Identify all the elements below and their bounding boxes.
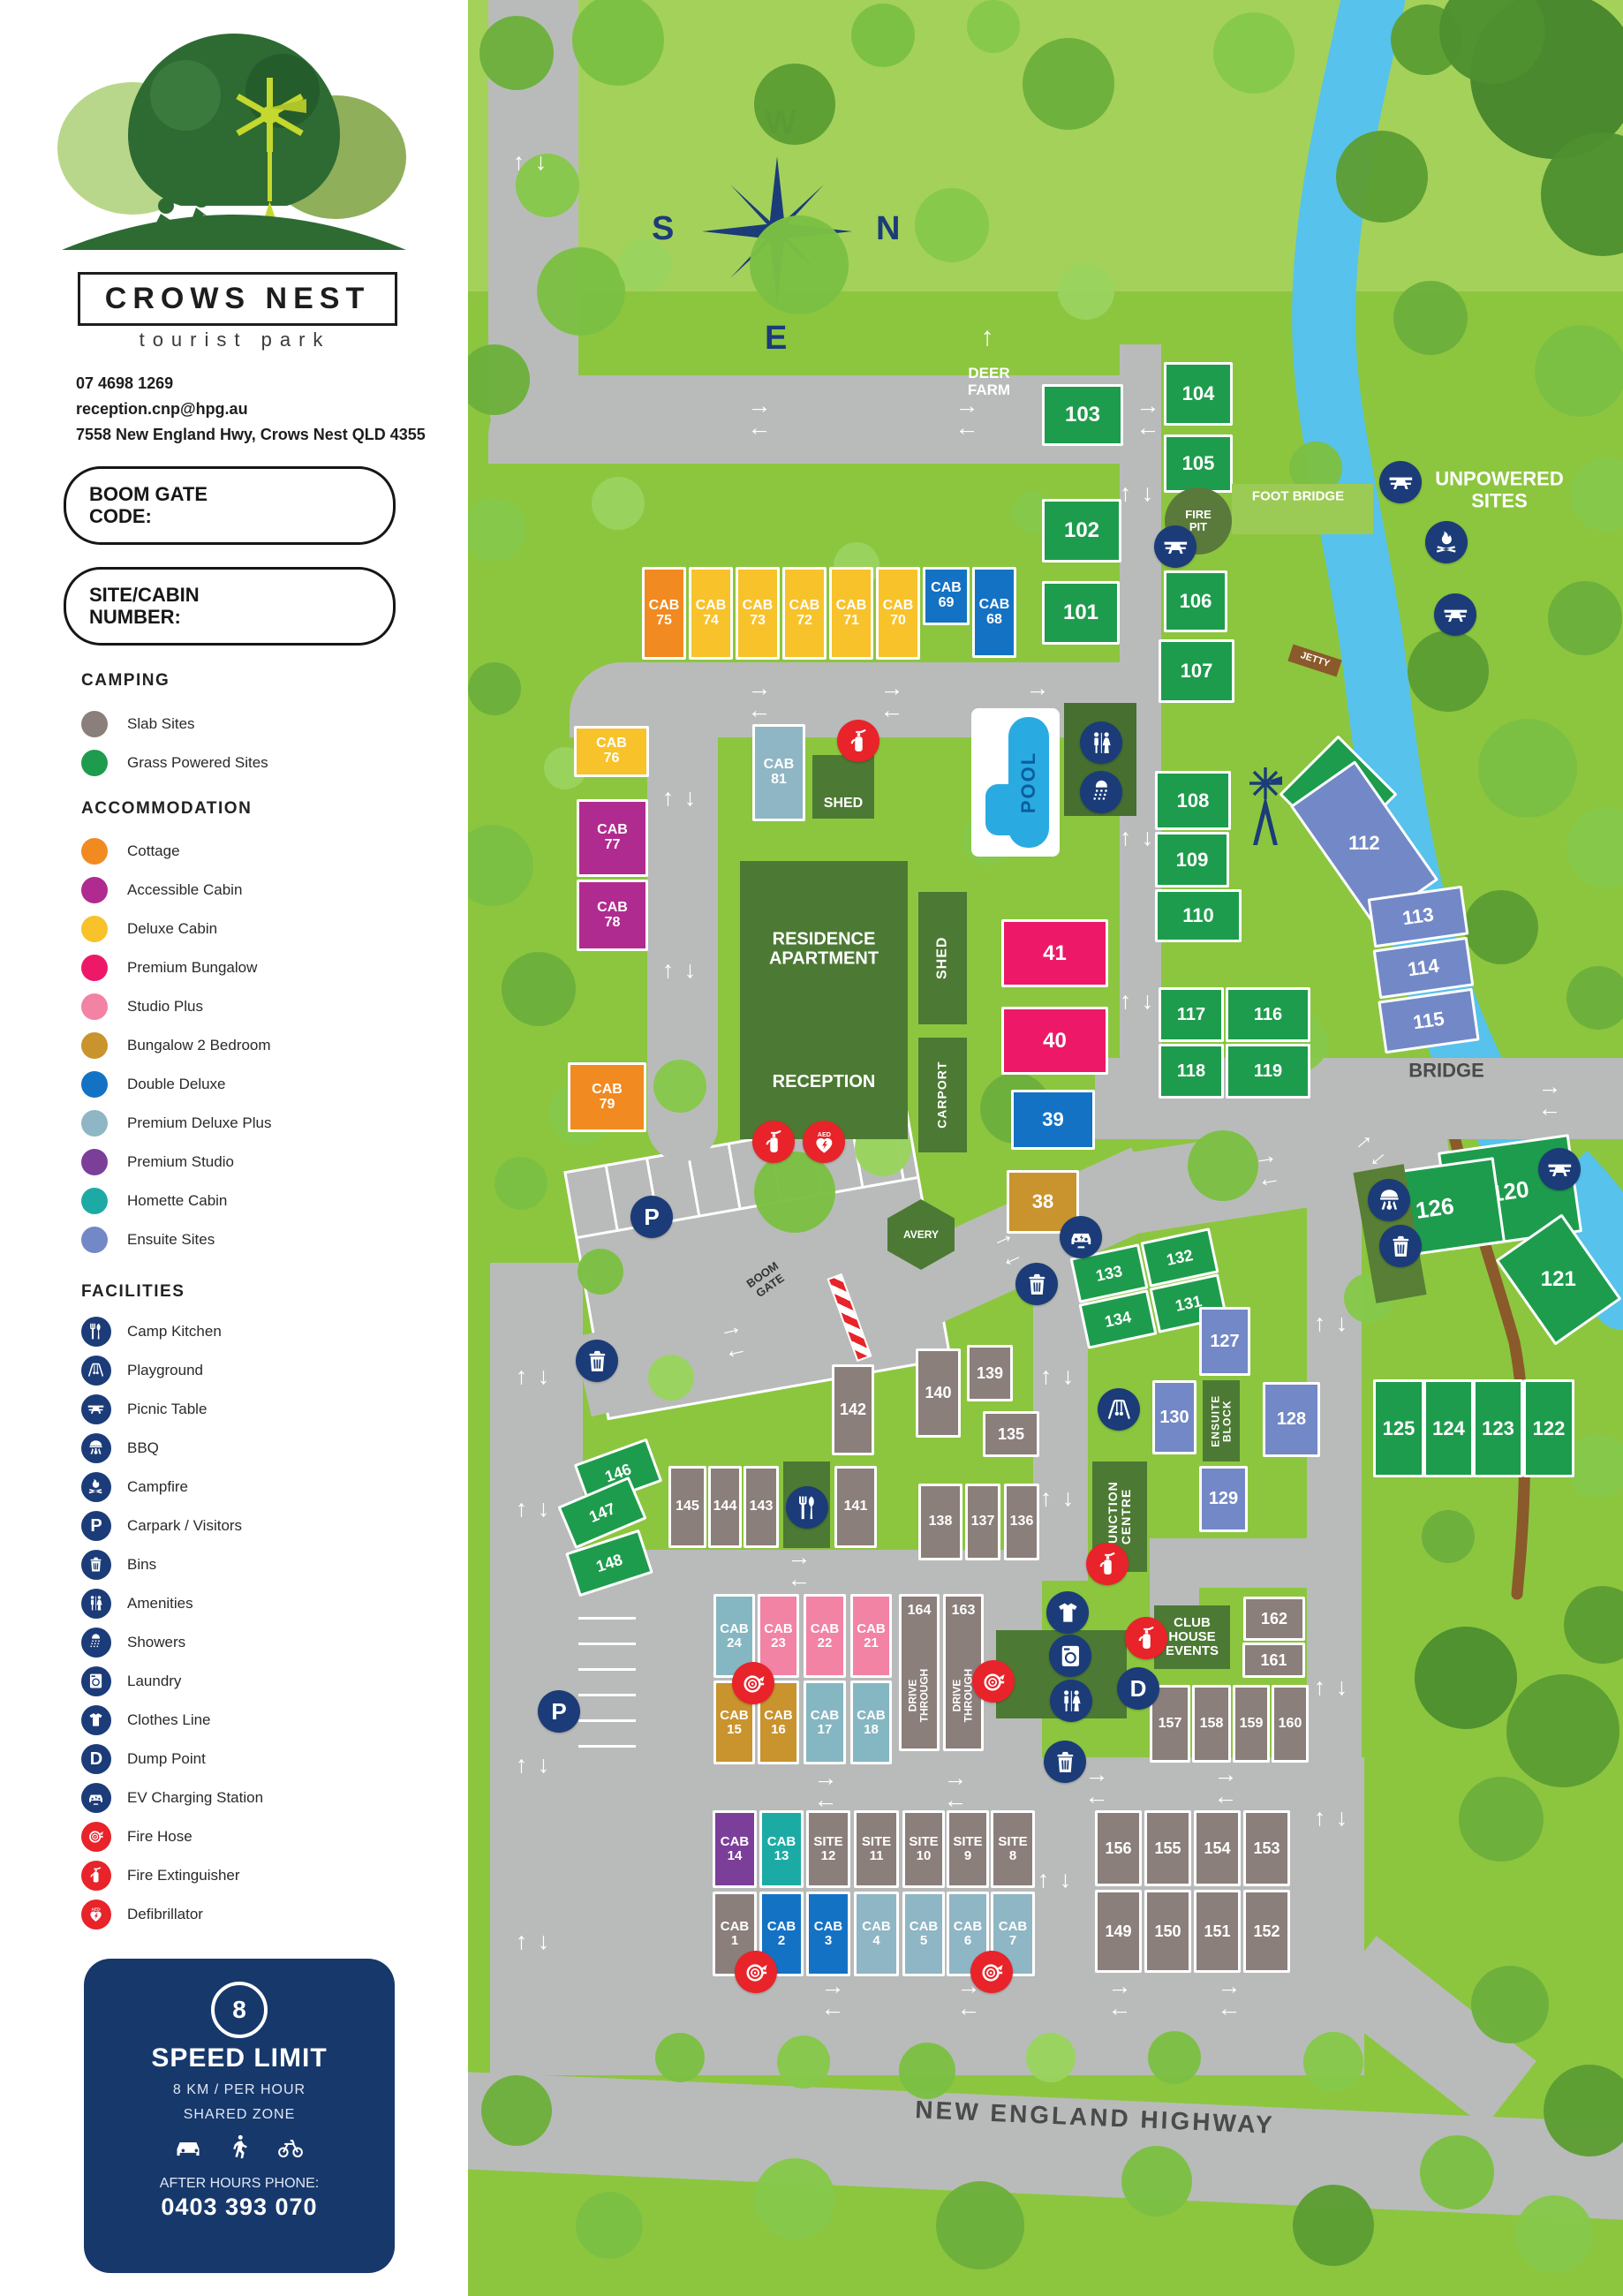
site-109: 109 xyxy=(1155,832,1229,887)
tree xyxy=(592,477,645,530)
lane-arrows: →← xyxy=(1034,1473,1087,1526)
site-carport: CARPORT xyxy=(918,1038,967,1152)
tree xyxy=(1408,631,1489,712)
building xyxy=(740,861,908,1139)
amenities-icon xyxy=(1050,1680,1092,1722)
site-136: 136 xyxy=(1004,1484,1039,1560)
site-137: 137 xyxy=(965,1484,1000,1560)
facility-item-label: Showers xyxy=(127,1634,185,1651)
lane-arrows: →← xyxy=(1031,1854,1084,1907)
speed-title: SPEED LIMIT xyxy=(84,2043,395,2073)
facility-item: BBQ xyxy=(81,1429,434,1468)
accommodation-item-label: Accessible Cabin xyxy=(127,881,242,899)
tree xyxy=(648,1355,694,1401)
tree xyxy=(899,2043,955,2099)
tree xyxy=(915,188,989,262)
site-159: 159 xyxy=(1233,1685,1270,1763)
site-129: 129 xyxy=(1199,1466,1248,1532)
tree xyxy=(1393,281,1468,355)
site-107: 107 xyxy=(1159,639,1234,703)
map-label-↑: ↑ xyxy=(981,322,994,352)
tree xyxy=(481,2075,552,2146)
tree xyxy=(479,16,554,90)
lane-arrows: →← xyxy=(656,773,709,826)
site-141: 141 xyxy=(834,1466,877,1548)
accommodation-item: Homette Cabin xyxy=(81,1182,434,1220)
tree xyxy=(1506,1674,1619,1787)
facility-item-label: Laundry xyxy=(127,1673,181,1690)
tree xyxy=(576,2192,643,2259)
lane-arrows: →← xyxy=(656,945,709,998)
site-site-10: SITE10 xyxy=(902,1810,945,1888)
site-135: 135 xyxy=(983,1411,1039,1457)
accommodation-item: Premium Studio xyxy=(81,1143,434,1182)
bins-icon xyxy=(576,1340,618,1382)
site-102: 102 xyxy=(1042,499,1121,563)
bbq-icon xyxy=(81,1433,111,1463)
bicycle-icon xyxy=(273,2134,308,2160)
park-logo xyxy=(53,16,415,272)
lane-arrows: →← xyxy=(1034,1351,1087,1404)
accommodation-item-label: Homette Cabin xyxy=(127,1192,227,1210)
tree xyxy=(1566,966,1623,1030)
legend-swatch xyxy=(81,1188,108,1214)
site-108: 108 xyxy=(1155,771,1231,830)
dump-point-icon: D xyxy=(1117,1667,1159,1710)
facility-item: Fire Hose xyxy=(81,1817,434,1856)
facilities-heading: FACILITIES xyxy=(81,1282,185,1302)
legend-swatch xyxy=(81,877,108,903)
accommodation-list: CottageAccessible CabinDeluxe CabinPremi… xyxy=(81,832,434,1259)
site-cab-74: CAB74 xyxy=(689,567,733,660)
fire-hose-icon xyxy=(732,1662,774,1704)
tree xyxy=(468,662,521,715)
site-125: 125 xyxy=(1373,1379,1424,1477)
fire-ext-icon xyxy=(752,1121,795,1163)
site-39: 39 xyxy=(1011,1090,1095,1150)
facility-item: AEDDefibrillator xyxy=(81,1895,434,1934)
map-label-drive: DRIVETHROUGH xyxy=(908,1669,932,1723)
site-106: 106 xyxy=(1164,570,1227,632)
site-151: 151 xyxy=(1194,1890,1241,1973)
accommodation-item-label: Studio Plus xyxy=(127,998,203,1016)
facility-item: Campfire xyxy=(81,1468,434,1507)
facility-item-label: Dump Point xyxy=(127,1750,206,1768)
tree xyxy=(1415,1627,1517,1729)
accommodation-item-label: Bungalow 2 Bedroom xyxy=(127,1037,271,1054)
facility-item-label: Bins xyxy=(127,1556,156,1574)
site-142: 142 xyxy=(832,1364,874,1455)
fire-hose-icon xyxy=(972,1660,1015,1703)
camping-item-label: Grass Powered Sites xyxy=(127,754,268,772)
lane-arrows: →← xyxy=(1237,1137,1298,1198)
tree xyxy=(1548,581,1622,655)
site-154: 154 xyxy=(1194,1810,1241,1886)
tree xyxy=(1566,1434,1623,1498)
tree xyxy=(1515,2195,1593,2273)
site-138: 138 xyxy=(918,1484,962,1560)
facility-item: Clothes Line xyxy=(81,1701,434,1740)
site-158: 158 xyxy=(1192,1685,1231,1763)
site-cab-4: CAB4 xyxy=(854,1892,899,1976)
fire-ext-icon xyxy=(1086,1543,1129,1585)
aed-icon: AED xyxy=(803,1121,845,1163)
site-cab-18: CAB18 xyxy=(850,1680,892,1764)
site-cab-3: CAB3 xyxy=(806,1892,850,1976)
site-143: 143 xyxy=(744,1466,779,1548)
tree xyxy=(754,1152,835,1233)
site-105: 105 xyxy=(1164,434,1233,493)
site-cab-78: CAB78 xyxy=(577,880,648,951)
tree xyxy=(655,2033,705,2082)
site-153: 153 xyxy=(1243,1810,1290,1886)
site-127: 127 xyxy=(1199,1307,1250,1376)
legend-swatch xyxy=(81,1149,108,1175)
tree xyxy=(1303,2032,1363,2092)
tree xyxy=(653,1060,706,1113)
site-ensuite-block: ENSUITEBLOCK xyxy=(1203,1380,1240,1461)
facility-item-label: Amenities xyxy=(127,1595,193,1612)
legend-swatch xyxy=(81,711,108,737)
lane-arrows: →← xyxy=(1308,1298,1361,1351)
site-site-11: SITE11 xyxy=(854,1810,899,1888)
site-139: 139 xyxy=(967,1345,1013,1401)
facility-item: Bins xyxy=(81,1545,434,1584)
site-155: 155 xyxy=(1144,1810,1191,1886)
site-cab-71: CAB71 xyxy=(829,567,873,660)
after-hours-phone: 0403 393 070 xyxy=(84,2194,395,2221)
facility-item: PCarpark / Visitors xyxy=(81,1507,434,1545)
fire-hose-icon xyxy=(970,1951,1013,1993)
tree xyxy=(936,2181,1024,2270)
accommodation-item: Deluxe Cabin xyxy=(81,910,434,948)
site-101: 101 xyxy=(1042,581,1120,645)
tree xyxy=(750,215,849,314)
lane-arrows: →← xyxy=(1523,1071,1576,1124)
tree xyxy=(1422,1510,1475,1563)
aed-icon: AED xyxy=(81,1899,111,1930)
accommodation-item-label: Ensuite Sites xyxy=(127,1231,215,1249)
site-shed: SHED xyxy=(918,892,967,1024)
site-104: 104 xyxy=(1164,362,1233,426)
carpark-icon: P xyxy=(538,1690,580,1733)
facility-item: Showers xyxy=(81,1623,434,1662)
accommodation-item-label: Premium Deluxe Plus xyxy=(127,1114,271,1132)
site-cab-75: CAB75 xyxy=(642,567,686,660)
accommodation-item: Premium Deluxe Plus xyxy=(81,1104,434,1143)
tree xyxy=(754,2158,835,2239)
site-110: 110 xyxy=(1155,889,1242,942)
site-140: 140 xyxy=(916,1348,961,1438)
site-cab-73: CAB73 xyxy=(736,567,780,660)
site-cab-79: CAB79 xyxy=(568,1062,646,1132)
picnic-icon xyxy=(81,1394,111,1424)
site-156: 156 xyxy=(1095,1810,1142,1886)
site-cabin-number-box: SITE/CABINNUMBER: xyxy=(64,567,396,646)
lane-arrows: →← xyxy=(865,673,918,726)
lane-arrows: →← xyxy=(733,390,786,443)
lane-arrows: →← xyxy=(1308,1793,1361,1846)
compass-e: E xyxy=(765,320,787,358)
accommodation-item-label: Cottage xyxy=(127,842,180,860)
facility-item: Playground xyxy=(81,1351,434,1390)
site-128: 128 xyxy=(1263,1382,1320,1457)
facility-item-label: Campfire xyxy=(127,1478,188,1496)
speed-number: 8 xyxy=(211,1982,268,2038)
svg-text:AED: AED xyxy=(817,1131,830,1138)
site-cab-68: CAB68 xyxy=(972,567,1016,658)
tree xyxy=(1026,2033,1076,2082)
pedestrian-icon xyxy=(222,2134,257,2160)
tree xyxy=(1464,890,1538,964)
bins-icon xyxy=(81,1550,111,1580)
accommodation-item-label: Deluxe Cabin xyxy=(127,920,217,938)
facility-item: Amenities xyxy=(81,1584,434,1623)
tree xyxy=(851,4,915,67)
site-cab-22: CAB22 xyxy=(804,1594,846,1678)
camping-heading: CAMPING xyxy=(81,671,170,691)
lane-arrows: →← xyxy=(773,1542,826,1595)
facility-item: Camp Kitchen xyxy=(81,1312,434,1351)
facility-item-label: Clothes Line xyxy=(127,1711,211,1729)
facility-item: DDump Point xyxy=(81,1740,434,1779)
site-site-12: SITE12 xyxy=(806,1810,850,1888)
tree xyxy=(967,0,1020,53)
facility-item: EV Charging Station xyxy=(81,1779,434,1817)
site-150: 150 xyxy=(1144,1890,1191,1973)
site-cab-81: CAB81 xyxy=(752,724,805,821)
tree xyxy=(1336,131,1428,223)
site-152: 152 xyxy=(1243,1890,1290,1973)
site-41: 41 xyxy=(1001,919,1108,987)
tree xyxy=(618,238,671,291)
accommodation-item: Double Deluxe xyxy=(81,1065,434,1104)
site-118: 118 xyxy=(1159,1044,1224,1099)
lane-arrows: →← xyxy=(507,137,560,190)
tree xyxy=(1121,2146,1192,2217)
ev-icon xyxy=(81,1783,111,1813)
legend-swatch xyxy=(81,1071,108,1098)
site-123: 123 xyxy=(1473,1379,1523,1477)
fire-ext-icon xyxy=(81,1861,111,1891)
phone: 07 4698 1269 xyxy=(76,371,429,397)
parking-stalls xyxy=(578,1616,636,1771)
facility-item-label: Fire Extinguisher xyxy=(127,1867,240,1884)
sidebar: CROWS NEST tourist park 07 4698 1269 rec… xyxy=(0,0,468,2296)
site-117: 117 xyxy=(1159,987,1224,1042)
lane-arrows: →← xyxy=(510,1916,562,1969)
site-144: 144 xyxy=(708,1466,742,1548)
map-label-deer: DEERFARM xyxy=(968,365,1010,398)
accommodation-item: Cottage xyxy=(81,832,434,871)
campfire-icon xyxy=(81,1472,111,1502)
picnic-icon xyxy=(1154,525,1196,568)
ev-icon xyxy=(1060,1216,1102,1258)
shared-zone-icons xyxy=(84,2134,395,2160)
tree xyxy=(1023,38,1114,130)
lane-arrows: →← xyxy=(1203,1971,1256,2024)
email: reception.cnp@hpg.au xyxy=(76,397,429,422)
compass-n: N xyxy=(876,210,900,248)
lane-arrows: →← xyxy=(510,1351,562,1404)
lane-arrows: →← xyxy=(510,1484,562,1537)
site-162: 162 xyxy=(1243,1597,1305,1641)
site-cab-13: CAB13 xyxy=(759,1810,804,1888)
site-cab-70: CAB70 xyxy=(876,567,920,660)
tree xyxy=(754,64,835,145)
picnic-icon xyxy=(1538,1148,1581,1190)
address: 7558 New England Hwy, Crows Nest QLD 435… xyxy=(76,422,429,448)
svg-text:AED: AED xyxy=(92,1907,102,1913)
legend-swatch xyxy=(81,1227,108,1253)
tree xyxy=(777,2035,830,2088)
speed-limit-sign: 8 SPEED LIMIT 8 KM / PER HOUR SHARED ZON… xyxy=(84,1959,395,2273)
accommodation-item-label: Premium Bungalow xyxy=(127,959,257,977)
tree xyxy=(1459,1777,1544,1862)
facility-item-label: EV Charging Station xyxy=(127,1789,263,1807)
accommodation-heading: ACCOMMODATION xyxy=(81,799,252,819)
site-124: 124 xyxy=(1423,1379,1474,1477)
fire-ext-icon xyxy=(1125,1617,1167,1659)
laundry-icon xyxy=(81,1666,111,1696)
site-122: 122 xyxy=(1523,1379,1574,1477)
legend-swatch xyxy=(81,955,108,981)
lane-arrows: →← xyxy=(510,1740,562,1793)
tree xyxy=(1478,719,1577,818)
site-cab-72: CAB72 xyxy=(782,567,827,660)
map-canvas: W N S E POOL xyxy=(468,0,1623,2296)
site-40: 40 xyxy=(1001,1007,1108,1075)
camp-kitchen-icon xyxy=(81,1317,111,1347)
facility-item-label: Defibrillator xyxy=(127,1906,203,1923)
accommodation-item: Bungalow 2 Bedroom xyxy=(81,1026,434,1065)
fire-ext-icon xyxy=(837,720,879,762)
after-hours-label: AFTER HOURS PHONE: xyxy=(84,2176,395,2192)
windmill-icon xyxy=(1245,764,1286,852)
pool-area: POOL xyxy=(971,708,1060,857)
lane-arrows: →← xyxy=(1093,1971,1146,2024)
contact-block: 07 4698 1269 reception.cnp@hpg.au 7558 N… xyxy=(76,371,429,448)
legend-swatch xyxy=(81,1032,108,1059)
showers-icon xyxy=(81,1628,111,1658)
legend-swatch xyxy=(81,916,108,942)
site-160: 160 xyxy=(1272,1685,1309,1763)
lane-arrows: →← xyxy=(1113,468,1166,521)
tree xyxy=(1293,2185,1374,2266)
facility-item-label: Playground xyxy=(127,1362,203,1379)
tree xyxy=(1213,12,1295,94)
park-map-poster: CROWS NEST tourist park 07 4698 1269 rec… xyxy=(0,0,1623,2296)
site-site-9: SITE9 xyxy=(947,1810,989,1888)
facility-item-label: Carpark / Visitors xyxy=(127,1517,242,1535)
speed-line1: 8 KM / PER HOUR xyxy=(84,2082,395,2098)
site-103: 103 xyxy=(1042,384,1123,446)
playground-icon xyxy=(1098,1388,1140,1431)
map-label-reception: RECEPTION xyxy=(773,1072,876,1091)
lane-arrows: →← xyxy=(806,1971,859,2024)
facility-item: Fire Extinguisher xyxy=(81,1856,434,1895)
site-cab-69: CAB69 xyxy=(923,567,970,625)
site-cab-77: CAB77 xyxy=(577,799,648,877)
facility-item-label: BBQ xyxy=(127,1439,159,1457)
site-161: 161 xyxy=(1242,1643,1305,1678)
site-149: 149 xyxy=(1095,1890,1142,1973)
map-label-unpowered: UNPOWEREDSITES xyxy=(1435,468,1563,511)
site-cab-21: CAB21 xyxy=(850,1594,892,1678)
camp-kitchen-icon xyxy=(786,1486,828,1529)
map-label-residence: RESIDENCEAPARTMENT xyxy=(769,930,879,970)
bbq-icon xyxy=(1368,1179,1410,1221)
camping-list: Slab SitesGrass Powered Sites xyxy=(81,705,434,782)
map-label-bridge: BRIDGE xyxy=(1408,1061,1484,1083)
legend-swatch xyxy=(81,838,108,865)
lane-arrows: →← xyxy=(1199,1759,1252,1812)
showers-icon xyxy=(1080,771,1122,813)
bins-icon xyxy=(1015,1263,1058,1305)
accommodation-item-label: Double Deluxe xyxy=(127,1076,226,1093)
fire-hose-icon xyxy=(81,1822,111,1852)
facility-item-label: Fire Hose xyxy=(127,1828,192,1846)
pool-label: POOL xyxy=(1017,751,1040,813)
tree xyxy=(1471,1966,1549,2043)
accommodation-item: Premium Bungalow xyxy=(81,948,434,987)
tree xyxy=(577,1249,623,1295)
playground-icon xyxy=(81,1356,111,1386)
fire-hose-icon xyxy=(735,1951,777,1993)
brand-title: CROWS NEST xyxy=(78,272,397,326)
facilities-list: Camp KitchenPlaygroundPicnic TableBBQCam… xyxy=(81,1312,434,1934)
site-shed: SHED xyxy=(812,755,874,819)
tree xyxy=(1148,2031,1201,2084)
lane-arrows: →← xyxy=(1308,1662,1361,1715)
tree xyxy=(1535,325,1623,417)
brand-subtitle: tourist park xyxy=(78,329,392,351)
legend-swatch xyxy=(81,993,108,1020)
tree xyxy=(1058,263,1114,320)
site-cab-17: CAB17 xyxy=(804,1680,846,1764)
picnic-icon xyxy=(1379,461,1422,503)
dump-point-icon: D xyxy=(81,1744,111,1774)
lane-arrows: →← xyxy=(929,1763,982,1816)
bins-icon xyxy=(1044,1741,1086,1783)
legend-swatch xyxy=(81,1110,108,1137)
site-119: 119 xyxy=(1226,1044,1310,1099)
site-130: 130 xyxy=(1152,1380,1196,1454)
laundry-icon xyxy=(1049,1635,1091,1677)
facility-item: Laundry xyxy=(81,1662,434,1701)
clothes-line-icon xyxy=(1046,1591,1089,1634)
campfire-icon xyxy=(1425,521,1468,563)
picnic-icon xyxy=(1434,593,1476,636)
site-116: 116 xyxy=(1226,987,1310,1042)
camping-item-label: Slab Sites xyxy=(127,715,195,733)
lane-arrows: →← xyxy=(733,673,786,726)
bins-icon xyxy=(1379,1225,1422,1267)
carpark-icon: P xyxy=(630,1196,673,1238)
accommodation-item: Studio Plus xyxy=(81,987,434,1026)
amenities-icon xyxy=(81,1589,111,1619)
amenities-icon xyxy=(1080,721,1122,764)
tree xyxy=(537,247,625,336)
site-site-8: SITE8 xyxy=(991,1810,1035,1888)
site-145: 145 xyxy=(668,1466,706,1548)
site-cab-14: CAB14 xyxy=(713,1810,757,1888)
lane-arrows: →← xyxy=(799,1763,852,1816)
speed-line2: SHARED ZONE xyxy=(84,2107,395,2123)
site-cab-76: CAB76 xyxy=(574,726,649,777)
map-label-foot-bridge: FOOT BRIDGE xyxy=(1252,490,1344,505)
legend-swatch xyxy=(81,750,108,776)
